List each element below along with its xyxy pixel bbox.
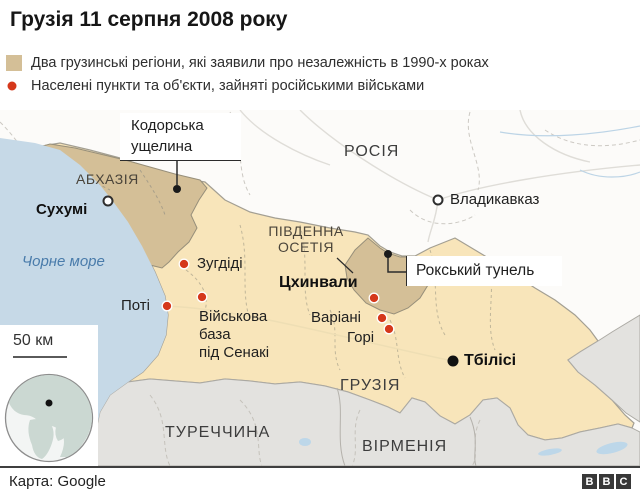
infographic-map-card: Грузія 11 серпня 2008 року Два грузинськ…	[0, 0, 640, 495]
globe-inset-icon	[0, 365, 98, 466]
map-attribution: Карта: Google	[9, 473, 106, 490]
sukhumi-marker	[104, 197, 113, 206]
label-sukhumi: Сухумі	[36, 202, 87, 218]
label-vladikavkaz: Владикавказ	[450, 192, 539, 208]
label-turkey: ТУРЕЧЧИНА	[165, 424, 270, 441]
kodori-gorge-marker	[173, 185, 181, 193]
label-senaki-base: Військова база під Сенакі	[199, 308, 269, 362]
roki-tunnel-marker	[384, 250, 392, 258]
callout-kodori-gorge: Кодорська ущелина	[120, 113, 241, 161]
legend-item-regions-label: Два грузинські регіони, які заявили про …	[31, 55, 489, 71]
occupied-dot-icon	[6, 78, 22, 94]
footer: Карта: Google B B C	[0, 466, 640, 495]
legend-item-occupied-label: Населені пункти та об'єкти, зайняті росі…	[31, 78, 424, 94]
label-russia: РОСІЯ	[344, 143, 399, 160]
label-black-sea: Чорне море	[22, 254, 105, 270]
label-tbilisi: Тбілісі	[464, 352, 516, 369]
vladikavkaz-marker	[434, 196, 443, 205]
region-swatch-icon	[6, 55, 22, 71]
scale-bar	[13, 356, 67, 358]
label-tskhinvali: Цхинвали	[279, 274, 358, 291]
label-armenia: ВІРМЕНІЯ	[362, 438, 447, 455]
tskhinvali-occupied-dot	[369, 293, 379, 303]
globe-location-dot	[46, 400, 53, 407]
page-title: Грузія 11 серпня 2008 року	[10, 8, 288, 32]
label-south-ossetia: ПІВДЕННА ОСЕТІЯ	[246, 223, 366, 255]
callout-roki-tunnel: Рокський тунель	[406, 256, 562, 286]
variani-occupied-dot	[377, 313, 387, 323]
bbc-logo-letter: B	[582, 474, 597, 489]
scale-inset: 50 км	[0, 325, 98, 466]
map-canvas: РОСІЯ Владикавказ АБХАЗІЯ Сухумі Чорне м…	[0, 110, 640, 466]
label-abkhazia: АБХАЗІЯ	[76, 172, 139, 187]
bbc-logo-letter: C	[616, 474, 631, 489]
label-zugdidi: Зугдіді	[197, 256, 243, 272]
tbilisi-marker	[448, 356, 459, 367]
zugdidi-occupied-dot	[179, 259, 189, 269]
senaki-occupied-dot	[197, 292, 207, 302]
legend-item-occupied: Населені пункти та об'єкти, зайняті росі…	[6, 77, 424, 95]
label-poti: Поті	[121, 298, 150, 314]
label-georgia: ГРУЗІЯ	[340, 377, 400, 394]
label-gori: Горі	[347, 330, 374, 346]
bbc-logo-letter: B	[599, 474, 614, 489]
gori-occupied-dot	[384, 324, 394, 334]
bbc-logo: B B C	[582, 474, 631, 489]
legend-item-regions: Два грузинські регіони, які заявили про …	[6, 54, 489, 72]
poti-occupied-dot	[162, 301, 172, 311]
label-variani: Варіані	[311, 310, 361, 326]
scale-label: 50 км	[13, 332, 53, 350]
